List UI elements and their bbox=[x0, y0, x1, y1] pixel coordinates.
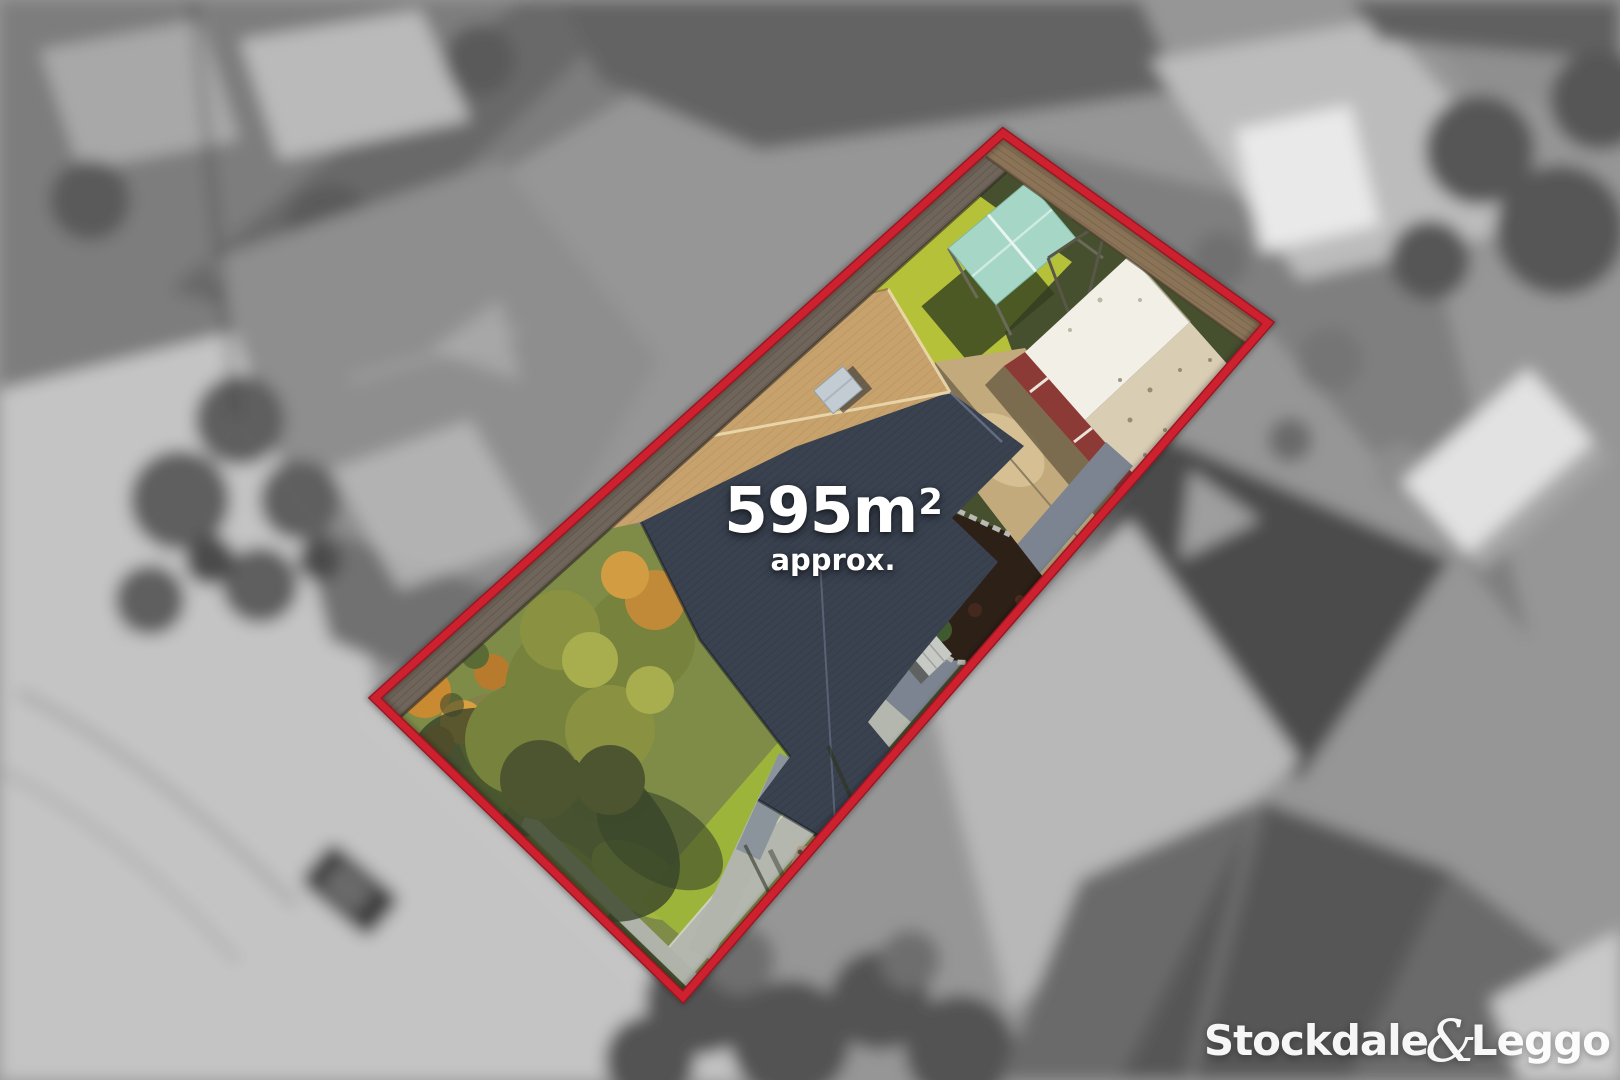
aerial-scene bbox=[0, 0, 1620, 1080]
aerial-property-photo: 595m2 approx. Stockdale&Leggo bbox=[0, 0, 1620, 1080]
